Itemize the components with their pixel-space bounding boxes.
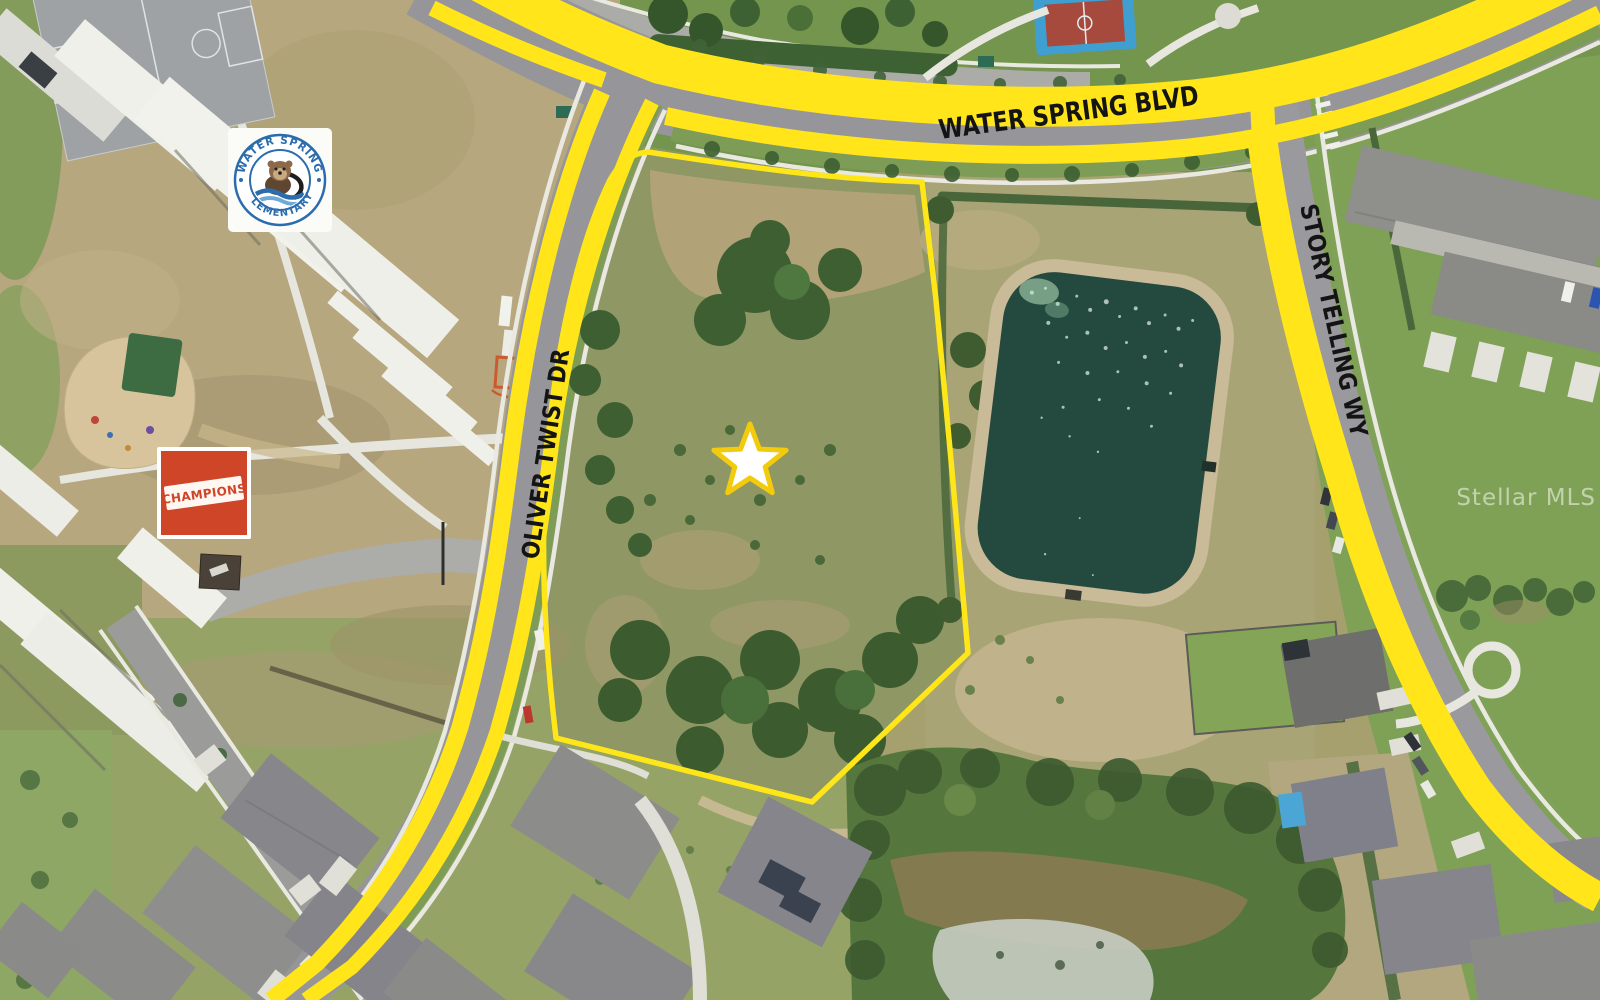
dirt-blob <box>20 250 180 350</box>
highlight-connector <box>1262 100 1264 142</box>
dirt-blob <box>1490 600 1550 624</box>
utility-box <box>978 56 994 67</box>
champions-logo: CHAMPIONS <box>157 447 251 539</box>
pond-outlet <box>1201 461 1216 473</box>
pond-equipment <box>1065 589 1082 601</box>
swimming-pool <box>1278 791 1306 828</box>
aerial-map: WATER SPRING ELEMENTARY CHAMPIONS WATER … <box>0 0 1600 1000</box>
dirt-blob <box>640 530 760 590</box>
stellar-mls-watermark: Stellar MLS <box>1456 485 1596 511</box>
park-basketball-court <box>1033 0 1137 55</box>
retention-pond <box>964 259 1238 615</box>
park-plaza <box>1215 3 1241 29</box>
playground-canopy <box>121 333 183 398</box>
school-logo: WATER SPRING ELEMENTARY <box>224 120 332 232</box>
aerial-map-canvas: WATER SPRING ELEMENTARY CHAMPIONS WATER … <box>0 0 1600 1000</box>
